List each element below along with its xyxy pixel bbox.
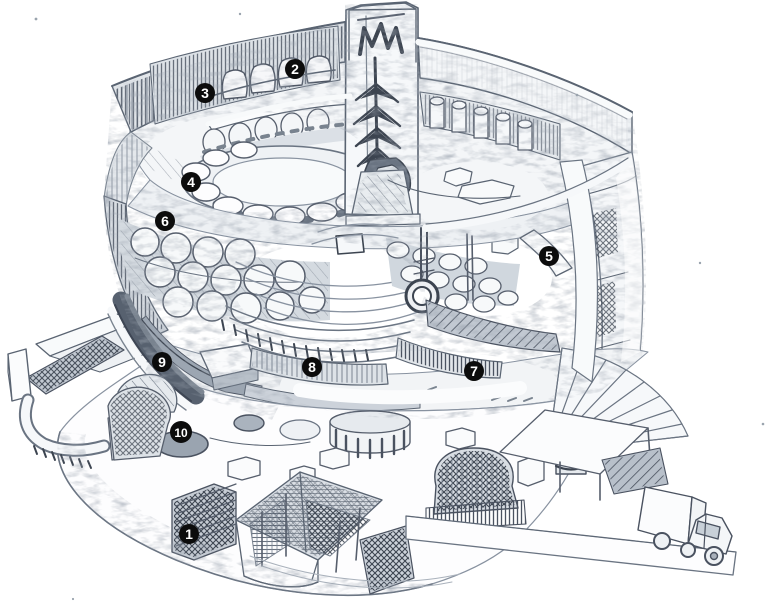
svg-text:4: 4 bbox=[187, 174, 195, 190]
svg-text:9: 9 bbox=[158, 354, 166, 370]
svg-text:10: 10 bbox=[174, 426, 188, 440]
svg-text:6: 6 bbox=[161, 213, 169, 229]
svg-text:7: 7 bbox=[470, 363, 478, 379]
svg-text:5: 5 bbox=[545, 248, 553, 264]
svg-text:2: 2 bbox=[291, 61, 299, 77]
svg-text:1: 1 bbox=[185, 526, 193, 542]
svg-text:8: 8 bbox=[308, 359, 316, 375]
svg-text:3: 3 bbox=[201, 85, 209, 101]
